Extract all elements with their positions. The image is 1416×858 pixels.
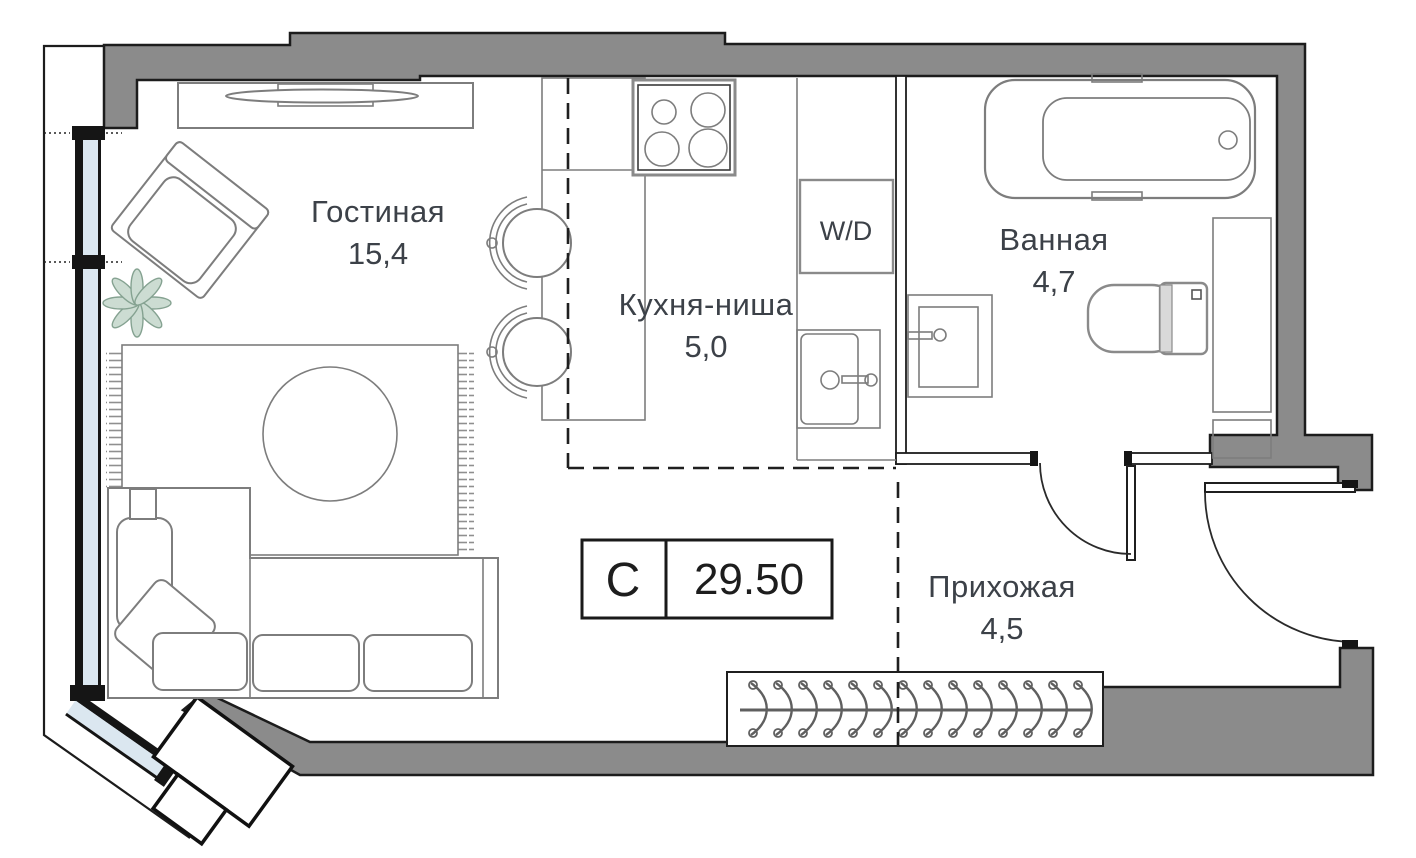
window-mullion-bottom	[70, 685, 105, 701]
entrance-jamb-bottom	[1342, 640, 1358, 648]
sofa-headrest	[130, 489, 156, 519]
partition-bath-hall-right	[1128, 453, 1212, 464]
living-room	[103, 83, 498, 698]
kitchen-niche-boundary	[568, 78, 898, 746]
shaft-cabinet	[1213, 218, 1271, 412]
floor-plan: Гостиная 15,4 Кухня-ниша 5,0 Ванная 4,7 …	[0, 0, 1416, 858]
window-mullion-top	[72, 126, 105, 140]
stove	[633, 80, 735, 175]
entrance-door-swing	[1205, 492, 1355, 642]
window-glass	[83, 128, 98, 698]
kitchen-sink	[797, 330, 880, 428]
tv-screen	[226, 90, 418, 103]
bar-stool-1	[487, 197, 571, 289]
bar-stool-2	[487, 306, 571, 398]
bathroom	[908, 74, 1271, 458]
kitchen-area: 5,0	[684, 329, 727, 364]
hallway-label: Прихожая	[928, 569, 1076, 604]
bathroom-area: 4,7	[1032, 264, 1075, 299]
plant	[103, 269, 171, 337]
floor-plan-canvas: Гостиная 15,4 Кухня-ниша 5,0 Ванная 4,7 …	[0, 0, 1416, 858]
sofa-seat-1	[153, 633, 247, 690]
window-frame-inner	[98, 128, 101, 698]
bathroom-door-leaf	[1127, 466, 1135, 560]
rug-fringe-left	[106, 350, 122, 490]
kitchen-label: Кухня-ниша	[619, 287, 794, 322]
round-table	[263, 367, 397, 501]
entrance-jamb-top	[1342, 480, 1358, 488]
entrance-door	[1205, 480, 1358, 648]
bathroom-door-swing	[1040, 463, 1131, 554]
sofa-seat-2	[253, 635, 359, 691]
corner-sofa	[108, 488, 498, 698]
living-room-label: Гостиная	[311, 194, 445, 229]
bathroom-sink	[908, 295, 992, 397]
sofa-seat-3	[364, 635, 472, 691]
door-jamb-bath-left	[1030, 451, 1038, 466]
kitchen	[487, 78, 896, 460]
bathroom-door	[1040, 463, 1135, 560]
unit-total-area: 29.50	[694, 555, 804, 604]
toilet	[1088, 283, 1207, 354]
bathroom-label: Ванная	[999, 222, 1108, 257]
washer-dryer-label: W/D	[820, 216, 872, 246]
window-mullion-mid	[72, 255, 105, 269]
doors	[1040, 463, 1358, 648]
unit-info-box: С 29.50	[582, 540, 832, 618]
bathtub	[985, 74, 1255, 200]
door-jamb-bath-right	[1124, 451, 1132, 466]
window-diagonal	[64, 692, 181, 787]
entrance-door-leaf	[1205, 483, 1355, 492]
unit-type: С	[606, 554, 641, 607]
living-room-area: 15,4	[348, 236, 408, 271]
partition-bath-hall-left	[896, 453, 1037, 464]
window-frame-outer	[75, 128, 83, 698]
rug-fringe-right	[458, 350, 474, 553]
hallway	[727, 672, 1103, 746]
hallway-area: 4,5	[980, 611, 1023, 646]
partition-kitchen-bath	[896, 76, 906, 464]
